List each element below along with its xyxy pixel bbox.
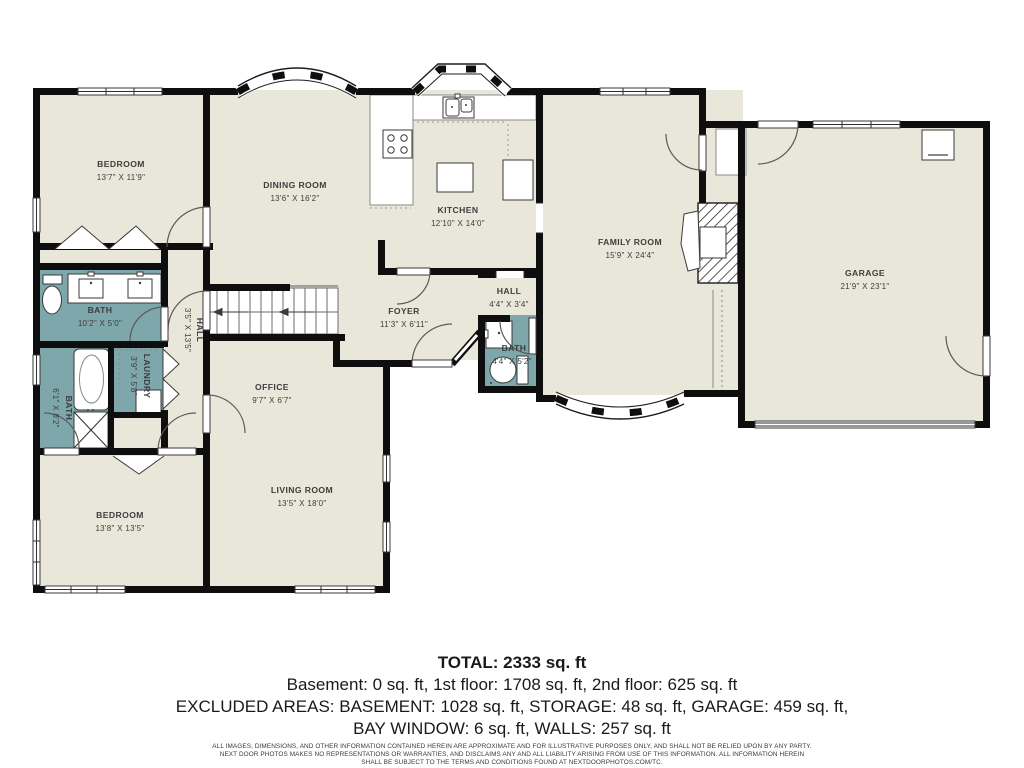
door-leaf-bedroom-tl	[203, 207, 210, 247]
door-leaf-bath-main	[161, 307, 168, 341]
room-hall-small	[478, 275, 540, 320]
dims-bedroom-tl: 13'7" X 11'9"	[97, 173, 146, 182]
door-leaf-bedroom-bl	[158, 448, 196, 455]
window-left-bedroom-tl	[33, 198, 40, 232]
dims-hall-left: 3'5" X 13'5"	[183, 308, 192, 352]
window-bottom-living	[295, 586, 375, 593]
excluded-areas-2: BAY WINDOW: 6 sq. ft, WALLS: 257 sq. ft	[0, 718, 1024, 740]
stove-icon	[383, 130, 412, 158]
label-family: FAMILY ROOM	[598, 237, 662, 247]
label-hall-left: HALL	[195, 318, 205, 343]
window-left-bedroom-bl	[33, 520, 40, 585]
kitchen-sink-icon	[443, 94, 474, 118]
dims-office: 9'7" X 6'7"	[252, 396, 292, 405]
toilet-icon	[43, 275, 63, 314]
window-bedroom-tl-top	[78, 88, 162, 95]
door-leaf-bath-left	[44, 448, 79, 455]
label-living: LIVING ROOM	[271, 485, 333, 495]
dims-foyer: 11'3" X 6'11"	[380, 320, 428, 329]
window-garage-top	[813, 121, 900, 128]
label-bedroom-bl: BEDROOM	[96, 510, 144, 520]
stairs	[206, 288, 338, 334]
disclaimer-line-1: ALL IMAGES, DIMENSIONS, AND OTHER INFORM…	[0, 743, 1024, 751]
dims-hall-small: 4'4" X 3'4"	[489, 300, 529, 309]
dims-living: 13'5" X 18'0"	[277, 499, 326, 508]
fireplace	[681, 203, 738, 283]
room-bedroom-bl	[36, 455, 206, 586]
excluded-areas-1: EXCLUDED AREAS: BASEMENT: 1028 sq. ft, S…	[0, 696, 1024, 718]
door-leaf-garage-entry	[758, 121, 798, 128]
floor-plan-drawing: BEDROOM 13'7" X 11'9" DINING ROOM 13'6" …	[0, 0, 1024, 648]
label-foyer: FOYER	[388, 306, 420, 316]
dims-laundry: 3'9" X 5'8"	[129, 356, 138, 396]
vanity-double-sink	[68, 272, 161, 303]
area-summary: TOTAL: 2333 sq. ft Basement: 0 sq. ft, 1…	[0, 652, 1024, 767]
dims-dining: 13'6" X 16'2"	[270, 194, 319, 203]
opening-hall-small	[496, 271, 524, 278]
window-living-right-2	[383, 522, 390, 552]
disclaimer-line-3: SHALL BE SUBJECT TO THE TERMS AND CONDIT…	[0, 759, 1024, 767]
window-bottom-bedroom-bl	[45, 586, 125, 593]
door-leaf-family-entry	[699, 135, 706, 171]
floor-plan-page: BEDROOM 13'7" X 11'9" DINING ROOM 13'6" …	[0, 0, 1024, 768]
door-leaf-kitchen-foyer	[397, 268, 430, 275]
dims-bath-left: 6'1" X 8'2"	[51, 388, 60, 428]
window-living-right-1	[383, 455, 390, 482]
dims-family: 15'9" X 24'4"	[605, 251, 654, 260]
window-left-bath	[33, 355, 40, 385]
dims-garage: 21'9" X 23'1"	[840, 282, 889, 291]
opening-dining-family	[536, 203, 543, 233]
fridge-icon	[503, 160, 533, 200]
disclaimer: ALL IMAGES, DIMENSIONS, AND OTHER INFORM…	[0, 743, 1024, 767]
label-office: OFFICE	[255, 382, 289, 392]
label-garage: GARAGE	[845, 268, 885, 278]
door-leaf-bath-small	[529, 318, 536, 354]
label-bath-main: BATH	[88, 305, 113, 315]
window-family-top	[600, 88, 670, 95]
label-hall-small: HALL	[497, 286, 522, 296]
label-bedroom-tl: BEDROOM	[97, 159, 145, 169]
label-bath-left: BATH	[64, 396, 74, 421]
dims-bath-main: 10'2" X 5'0"	[78, 319, 122, 328]
furnace-icon	[922, 130, 954, 160]
label-dining: DINING ROOM	[263, 180, 327, 190]
label-laundry: LAUNDRY	[142, 354, 152, 399]
label-bath-small: BATH	[502, 343, 527, 353]
door-leaf-garage-side	[983, 336, 990, 376]
label-kitchen: KITCHEN	[438, 205, 479, 215]
kitchen-island	[437, 163, 473, 192]
dims-bath-small: 4'4" X 5'2"	[492, 357, 532, 366]
disclaimer-line-2: NEXT DOOR PHOTOS MAKES NO REPRESENTATION…	[0, 751, 1024, 759]
front-door-leaf	[412, 360, 452, 367]
bow-window-family	[556, 392, 684, 419]
door-leaf-office	[203, 395, 210, 433]
dims-bedroom-bl: 13'8" X 13'5"	[95, 524, 144, 533]
total-area: TOTAL: 2333 sq. ft	[0, 652, 1024, 674]
floor-areas: Basement: 0 sq. ft, 1st floor: 1708 sq. …	[0, 674, 1024, 696]
dims-kitchen: 12'10" X 14'0"	[431, 219, 485, 228]
garage-vehicle-door	[755, 421, 975, 428]
